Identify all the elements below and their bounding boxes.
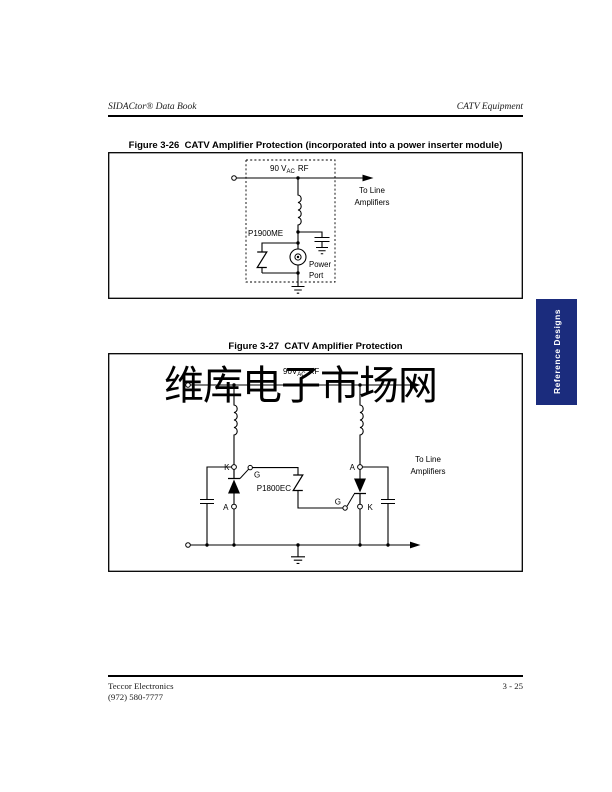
- junction-dot: [205, 543, 208, 546]
- to-line-label-2: Amplifiers: [354, 198, 389, 207]
- footer-rule: [108, 675, 523, 677]
- g-left-label: G: [254, 471, 260, 480]
- a-terminal-icon: [358, 465, 363, 470]
- a-left-label: A: [223, 503, 229, 512]
- input-terminal-icon: [232, 176, 237, 181]
- header-rule: [108, 115, 523, 117]
- k-right-label: K: [368, 503, 374, 512]
- input-terminal-icon: [186, 383, 191, 388]
- to-line-label-1: To Line: [359, 186, 385, 195]
- g-right-label: G: [335, 498, 341, 507]
- junction-dot: [358, 543, 361, 546]
- g-terminal-icon: [343, 506, 347, 510]
- to-line-label-1: To Line: [415, 455, 441, 464]
- watermark-text: 维库电子市场网: [164, 364, 437, 408]
- side-tab-label: Reference Designs: [552, 309, 562, 394]
- a-right-label: A: [350, 463, 356, 472]
- footer-page-number: 3 - 25: [108, 681, 523, 692]
- figure-27-circuit: 维库电子市场网 90VACRF K G A: [108, 353, 523, 572]
- device-label: P1900ME: [248, 229, 283, 238]
- k-terminal-icon: [358, 504, 363, 509]
- figure-26-title: Figure 3-26 CATV Amplifier Protection (i…: [108, 140, 523, 151]
- g-terminal-icon: [248, 465, 252, 469]
- side-tab-reference-designs: Reference Designs: [536, 299, 577, 405]
- junction-dot: [386, 543, 389, 546]
- a-terminal-icon: [232, 504, 237, 509]
- figure-26-circuit: 90 VACRF To Line Amplifiers: [108, 152, 523, 299]
- power-port-label-2: Port: [309, 271, 324, 280]
- to-line-label-2: Amplifiers: [410, 467, 445, 476]
- power-port-symbol: [290, 249, 306, 265]
- power-port-label-1: Power: [309, 260, 332, 269]
- junction-dot: [232, 543, 235, 546]
- header-right-title: CATV Equipment: [108, 102, 523, 112]
- footer-phone: (972) 580-7777: [108, 692, 163, 703]
- k-terminal-icon: [232, 465, 237, 470]
- device-label: P1800EC: [257, 484, 291, 493]
- figure-27-frame: 维库电子市场网 90VACRF K G A: [108, 353, 523, 572]
- document-page: SIDACtor® Data Book CATV Equipment Figur…: [0, 0, 612, 792]
- figure-26-frame: 90 VACRF To Line Amplifiers: [108, 152, 523, 299]
- figure-27-title: Figure 3-27 CATV Amplifier Protection: [108, 341, 523, 352]
- input-terminal-icon: [186, 543, 191, 548]
